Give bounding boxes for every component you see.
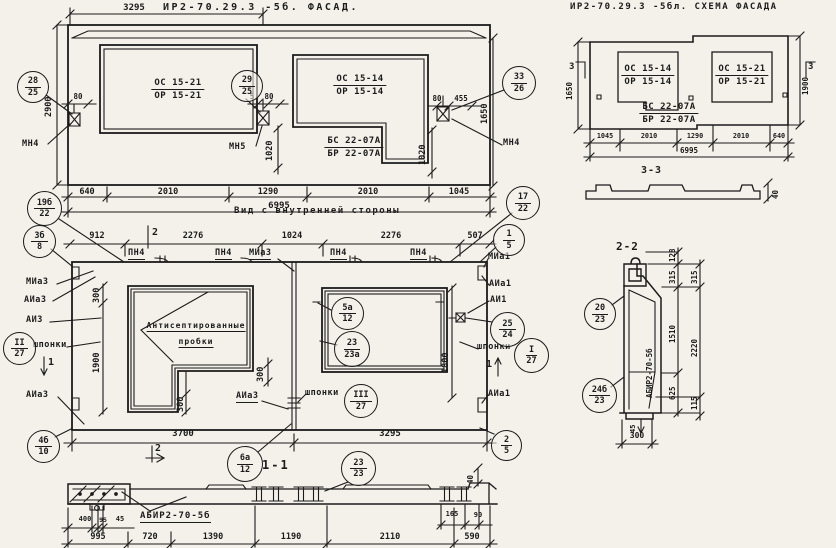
dim-80-right: 80 [432,95,441,103]
dim-1024: 1024 [282,232,302,241]
dim-1290: 1290 [258,188,278,197]
dim-1020-left: 1020 [266,141,275,161]
dim-300-sec22: 300 [630,432,644,440]
label-pn4-d: ПН4 [410,249,427,260]
section2-mark-bottom: 2 [155,444,161,454]
dim-1190: 1190 [281,533,301,542]
facade-title: ИР2-70.29.3 -5б. ФАСАД. [163,3,359,13]
callout-III-27: III27 [344,384,378,418]
dim-45-strip: 45 [116,516,124,523]
callout-24b-23: 24б23 [582,378,617,413]
label-mia3-left: МИа3 [26,278,48,287]
label-ai3-left: АИ3 [26,316,43,325]
dim-2010-b: 2010 [358,188,378,197]
dim-1650-facade: 1650 [481,104,490,124]
callout-6a-12: 6а12 [227,446,263,482]
dim-455: 455 [454,95,468,103]
label-pn4-c: ПН4 [330,249,347,260]
section-2-2-title: 2-2 [616,241,639,252]
schema-title: ИР2-70.29.3 -5бл. СХЕМА ФАСАДА [570,3,778,12]
dim-1390: 1390 [203,533,223,542]
blueprint-drawing: ИР2-70.29.3 -5б. ФАСАД. 3295 ОС 15-21 ОР… [0,0,836,548]
dim-165: 165 [446,511,459,518]
inner-view-title: Вид с внутренней стороны [234,207,400,216]
strip-panel-label: АБИР2-70-5б [140,512,211,523]
callout-I-27: I27 [514,338,549,373]
facade-block-mark: БС 22-07А БР 22-07А [324,136,383,160]
dim-1900-inner: 1900 [93,353,102,373]
callout-4b-10: 4б10 [27,430,60,463]
dim-40-schema: 40 [772,190,780,199]
dim-2010-a: 2010 [158,188,178,197]
dim-90: 90 [474,512,482,519]
schema-block-mark: БС 22-07А БР 22-07А [639,102,698,126]
dim-1800: 1800 [442,353,451,373]
dim-s640: 640 [773,133,785,140]
dim-590: 590 [464,533,479,542]
dim-3295-bottom: 3295 [379,430,401,439]
dim-6995-schema: 6995 [680,147,698,155]
dim-300-c: 300 [177,397,186,412]
section2-mark-top: 2 [152,228,158,238]
section3-mark-right: 3 [808,63,813,72]
callout-28-25: 2825 [17,71,49,103]
schema-window2-mark: ОС 15-21 ОР 15-21 [715,64,768,88]
callout-5a-12: 5а12 [331,297,364,330]
dim-115: 115 [691,396,699,410]
dim-40-strip: 40 [467,475,475,484]
facade-window2-mark: ОС 15-14 ОР 15-14 [333,74,386,98]
label-aia3-mid: АИа3 [236,392,258,403]
dim-912: 912 [89,232,104,241]
anchor-label-mn5: МН5 [229,143,246,152]
label-shponki-bottom: шпонки [305,389,339,398]
callout-2-5: 25 [491,430,522,461]
dim-400: 400 [79,516,92,523]
dim-s1290: 1290 [687,133,703,140]
dim-2900: 2900 [45,97,54,117]
label-mia3-top: МИа3 [249,249,271,260]
dim-s2010-a: 2010 [641,133,657,140]
dim-s1045: 1045 [597,133,613,140]
dim-315-b: 315 [691,270,699,284]
label-antiseptic-line1: Антисептированные [147,322,246,332]
dim-995: 995 [90,533,105,542]
dim-1900-schema: 1900 [802,77,810,95]
dim-s2010-b: 2010 [733,133,749,140]
schema-window1-mark: ОС 15-14 ОР 15-14 [621,64,674,88]
callout-29-25: 2925 [231,70,263,102]
drawing-linework [0,0,836,548]
label-aia1-right: АИа1 [489,280,511,289]
anchor-label-mn4-left: МН4 [22,140,39,149]
sec22-panel-label: АБИР2-70-5б [646,348,654,398]
dim-80-left: 80 [73,93,82,101]
dim-3295-top: 3295 [123,4,145,13]
section-1-1-title: 1-1 [262,459,290,471]
section3-mark-left: 3 [569,63,574,72]
dim-300-a: 300 [93,288,102,303]
section-3-3-title: 3-3 [641,166,662,176]
dim-1650-schema: 1650 [566,82,574,100]
section1-mark-left: 1 [48,358,54,368]
dim-2110: 2110 [380,533,400,542]
facade-window1-mark: ОС 15-21 ОР 15-21 [151,78,204,102]
dim-2276-a: 2276 [183,232,203,241]
callout-3b-8: 3б8 [23,225,56,258]
dim-1045: 1045 [449,188,469,197]
label-ai1-right: АИ1 [490,296,507,305]
dim-3700: 3700 [172,430,194,439]
dim-80-mid: 80 [264,93,273,101]
callout-23-23a: 2323а [334,331,370,367]
dim-1020-right: 1020 [419,145,428,165]
dim-2276-b: 2276 [381,232,401,241]
label-antiseptic-line2: пробки [179,338,214,348]
dim-1510: 1510 [669,325,677,343]
section1-mark-right: 1 [486,360,492,370]
callout-33-26: 3326 [502,66,536,100]
label-aia3-left-bottom: АИа3 [26,391,48,400]
label-pn4-a: ПН4 [128,249,145,260]
dim-315-a: 315 [669,270,677,284]
dim-128: 128 [669,248,677,262]
dim-507: 507 [467,232,482,241]
label-pn4-b: ПН4 [215,249,232,260]
dim-300-b: 300 [257,367,266,382]
label-aia3-left: АИа3 [24,296,46,305]
anchor-label-mn4-right: МН4 [503,139,520,148]
dim-625: 625 [669,386,677,400]
label-aia1-right-bottom: АИа1 [488,390,510,399]
dim-720: 720 [142,533,157,542]
callout-19b-22: 19б22 [27,191,62,226]
callout-20-23: 2023 [584,298,616,330]
callout-1-5: 15 [493,224,525,256]
dim-2220: 2220 [691,339,699,357]
dim-95: 95 [99,517,107,524]
dim-640: 640 [79,188,94,197]
callout-17-22: 1722 [506,186,540,220]
callout-II-27: II27 [3,332,36,365]
callout-23-23: 2323 [341,451,376,486]
label-shponki-left: шпонки [33,341,67,350]
